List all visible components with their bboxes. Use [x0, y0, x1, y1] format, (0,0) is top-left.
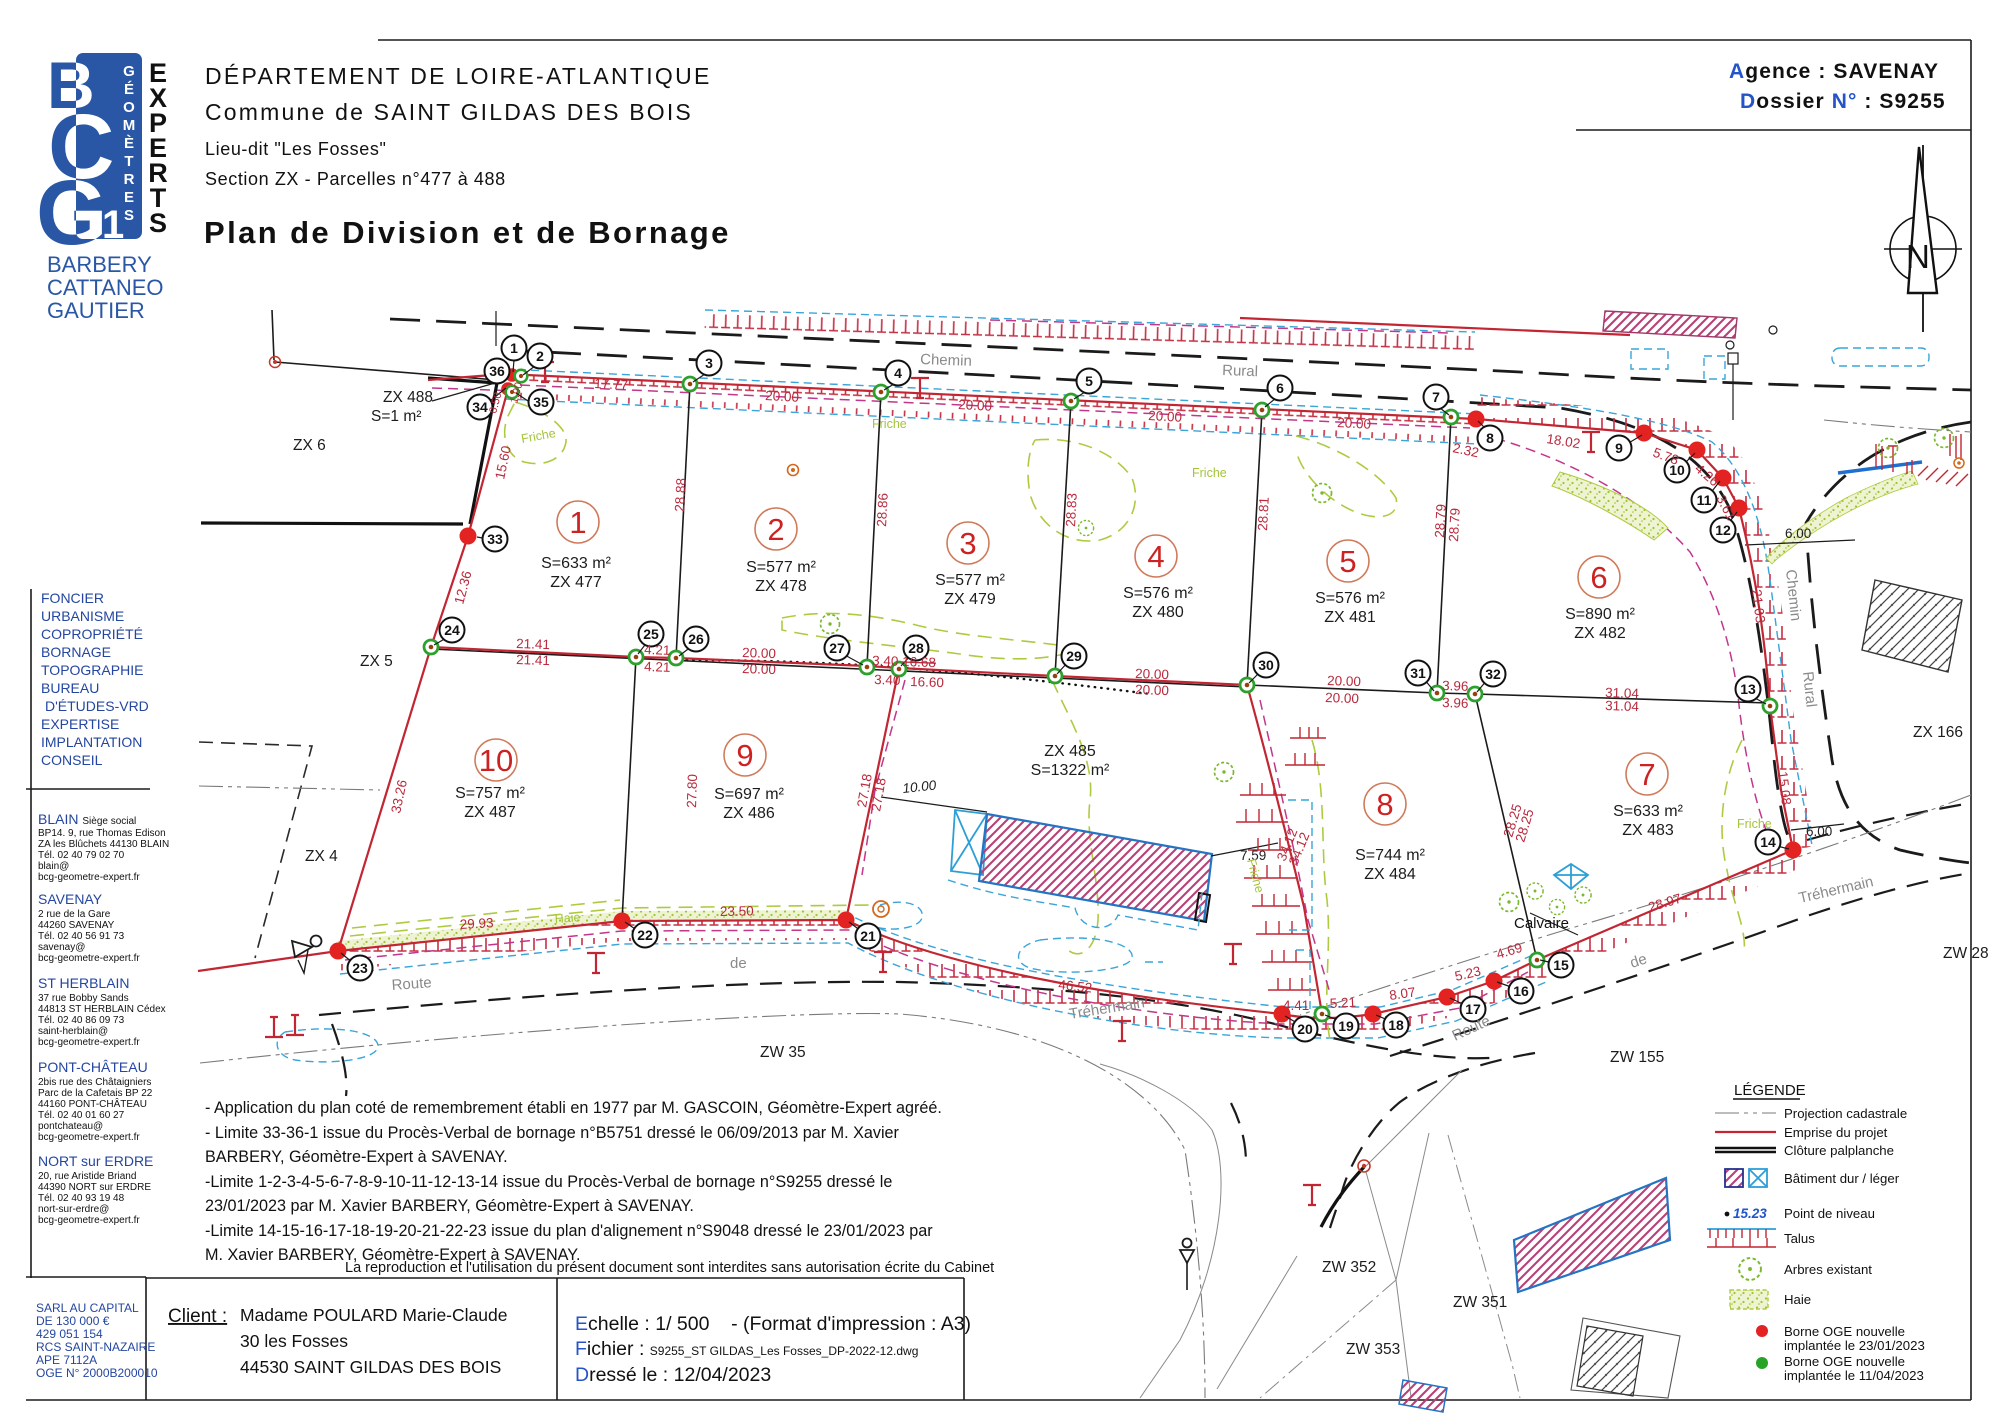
svg-text:savenay@: savenay@ — [38, 942, 85, 953]
svg-text:Madame POULARD Marie-Claude: Madame POULARD Marie-Claude — [240, 1305, 507, 1325]
svg-text:1: 1 — [102, 203, 124, 247]
svg-text:20: 20 — [1297, 1021, 1313, 1037]
svg-text:10: 10 — [479, 743, 513, 778]
svg-text:2.32: 2.32 — [1451, 440, 1480, 460]
svg-text:3.96: 3.96 — [1442, 695, 1469, 711]
svg-text:E: E — [124, 189, 134, 206]
svg-text:S=757 m²: S=757 m² — [455, 785, 525, 802]
svg-text:S=576 m²: S=576 m² — [1123, 585, 1193, 602]
svg-text:20.00: 20.00 — [742, 661, 776, 677]
svg-text:Rural: Rural — [1799, 671, 1820, 708]
svg-text:8.07: 8.07 — [1388, 984, 1416, 1003]
svg-text:4.41: 4.41 — [1283, 998, 1309, 1013]
svg-text:27: 27 — [829, 640, 845, 656]
svg-text:6: 6 — [1590, 560, 1607, 595]
svg-text:18: 18 — [1388, 1017, 1404, 1033]
svg-text:S: S — [124, 207, 134, 224]
svg-text:ZX 481: ZX 481 — [1324, 609, 1376, 626]
svg-text:Chemin: Chemin — [1782, 569, 1804, 622]
svg-text:22: 22 — [637, 927, 653, 943]
svg-text:23/01/2023 par M. Xavier BARBE: 23/01/2023 par M. Xavier BARBERY, Géomèt… — [205, 1197, 694, 1215]
svg-text:implantée le 23/01/2023: implantée le 23/01/2023 — [1784, 1338, 1925, 1353]
svg-text:4: 4 — [1147, 539, 1164, 574]
svg-text:20, rue Aristide Briand: 20, rue Aristide Briand — [38, 1171, 136, 1182]
svg-text:ZX 5: ZX 5 — [360, 653, 393, 670]
svg-text:Friche: Friche — [1192, 466, 1227, 480]
svg-text:bcg-geometre-expert.fr: bcg-geometre-expert.fr — [38, 953, 140, 964]
svg-text:CONSEIL: CONSEIL — [41, 752, 103, 768]
svg-text:Friche: Friche — [1737, 817, 1772, 831]
svg-text:Lieu-dit "Les Fosses": Lieu-dit "Les Fosses" — [205, 139, 386, 159]
svg-text:-Limite 14-15-16-17-18-19-20-2: -Limite 14-15-16-17-18-19-20-21-22-23 is… — [205, 1222, 933, 1240]
svg-text:S=1322 m²: S=1322 m² — [1031, 762, 1110, 779]
svg-text:Emprise du projet: Emprise du projet — [1784, 1125, 1888, 1140]
svg-text:ZX 6: ZX 6 — [293, 437, 326, 454]
svg-text:Dressé le : 12/04/2023: Dressé le : 12/04/2023 — [575, 1364, 771, 1386]
svg-text:Borne OGE nouvelle: Borne OGE nouvelle — [1784, 1354, 1905, 1369]
svg-text:La reproduction et l'utilisati: La reproduction et l'utilisation du prés… — [345, 1260, 994, 1276]
svg-text:12: 12 — [1715, 522, 1731, 538]
svg-text:bcg-geometre-expert.fr: bcg-geometre-expert.fr — [38, 1037, 140, 1048]
svg-text:DÉPARTEMENT DE LOIRE-ATLANTIQU: DÉPARTEMENT DE LOIRE-ATLANTIQUE — [205, 63, 712, 89]
svg-text:16.60: 16.60 — [910, 674, 944, 690]
svg-text:ZX 482: ZX 482 — [1574, 625, 1626, 642]
svg-text:30: 30 — [1258, 657, 1274, 673]
svg-text:Tél. 02 40 56 91 73: Tél. 02 40 56 91 73 — [38, 931, 125, 942]
svg-text:28.83: 28.83 — [1063, 493, 1080, 528]
svg-text:S=744 m²: S=744 m² — [1355, 847, 1425, 864]
svg-text:9: 9 — [736, 738, 753, 773]
svg-text:27.80: 27.80 — [684, 774, 700, 808]
svg-text:Clôture palplanche: Clôture palplanche — [1784, 1143, 1894, 1158]
svg-text:21.41: 21.41 — [516, 636, 550, 652]
svg-text:44530 SAINT GILDAS DES BOIS: 44530 SAINT GILDAS DES BOIS — [240, 1357, 501, 1377]
svg-text:1: 1 — [510, 340, 518, 356]
svg-text:Point de niveau: Point de niveau — [1784, 1206, 1875, 1221]
svg-text:14: 14 — [1760, 834, 1776, 850]
svg-text:Haie: Haie — [1784, 1292, 1811, 1307]
svg-text:4: 4 — [894, 365, 902, 381]
svg-text:9: 9 — [1615, 440, 1623, 456]
svg-text:ZX 487: ZX 487 — [464, 804, 516, 821]
svg-text:13: 13 — [1740, 681, 1756, 697]
svg-text:OGE N° 2000B200010: OGE N° 2000B200010 — [36, 1366, 158, 1380]
svg-text:6.00: 6.00 — [1785, 526, 1811, 541]
svg-text:4.21: 4.21 — [644, 642, 671, 658]
svg-text:pontchateau@: pontchateau@ — [38, 1121, 103, 1132]
svg-text:DE 130 000 €: DE 130 000 € — [36, 1314, 110, 1328]
svg-text:20.00: 20.00 — [1325, 690, 1359, 706]
svg-text:saint-herblain@: saint-herblain@ — [38, 1026, 108, 1037]
svg-text:35: 35 — [533, 394, 549, 410]
svg-text:31.04: 31.04 — [1605, 698, 1640, 714]
svg-text:blain@: blain@ — [38, 861, 69, 872]
svg-text:33: 33 — [487, 531, 503, 547]
svg-text:S=1 m²: S=1 m² — [371, 408, 421, 425]
svg-text:20.00: 20.00 — [765, 388, 800, 405]
svg-text:18.02: 18.02 — [1546, 431, 1582, 451]
svg-text:20.00: 20.00 — [1135, 666, 1169, 682]
svg-text:Arbres existant: Arbres existant — [1784, 1262, 1872, 1277]
svg-text:7: 7 — [1638, 757, 1655, 792]
svg-text:BARBERY: BARBERY — [47, 252, 152, 277]
svg-text:3.40: 3.40 — [874, 672, 901, 688]
svg-text:Section ZX - Parcelles n°477 à: Section ZX - Parcelles n°477 à 488 — [205, 169, 506, 189]
svg-text:Commune de SAINT GILDAS DES BO: Commune de SAINT GILDAS DES BOIS — [205, 99, 693, 125]
svg-text:Agence : SAVENAY: Agence : SAVENAY — [1729, 60, 1939, 83]
svg-text:LÉGENDE: LÉGENDE — [1734, 1082, 1806, 1099]
svg-text:GAUTIER: GAUTIER — [47, 298, 145, 323]
svg-text:21.03: 21.03 — [1749, 589, 1768, 624]
svg-text:Haie: Haie — [554, 910, 581, 926]
svg-text:20.00: 20.00 — [1337, 415, 1372, 432]
svg-text:de: de — [730, 955, 747, 972]
svg-text:ZX 483: ZX 483 — [1622, 822, 1674, 839]
svg-text:34: 34 — [472, 399, 488, 415]
svg-text:EXPERTISE: EXPERTISE — [41, 716, 119, 732]
svg-text:ZX 479: ZX 479 — [944, 591, 996, 608]
svg-text:Tél. 02 40 86 09 73: Tél. 02 40 86 09 73 — [38, 1015, 125, 1026]
svg-text:S=633 m²: S=633 m² — [541, 555, 611, 572]
svg-text:S=633 m²: S=633 m² — [1613, 803, 1683, 820]
svg-text:T: T — [124, 153, 133, 170]
svg-text:Talus: Talus — [1784, 1231, 1815, 1246]
svg-text:23.50: 23.50 — [720, 903, 754, 919]
svg-text:32: 32 — [1485, 666, 1501, 682]
svg-text:21.41: 21.41 — [516, 652, 550, 668]
svg-text:ZA les Blûchets 44130 BLAIN: ZA les Blûchets 44130 BLAIN — [38, 839, 169, 850]
svg-text:ZX 4: ZX 4 — [305, 848, 338, 865]
svg-text:ZX 477: ZX 477 — [550, 574, 602, 591]
svg-text:44160 PONT-CHÂTEAU: 44160 PONT-CHÂTEAU — [38, 1097, 147, 1110]
svg-text:O: O — [123, 99, 135, 116]
svg-text:- Application du plan coté de: - Application du plan coté de remembreme… — [205, 1099, 942, 1117]
svg-text:S=577 m²: S=577 m² — [746, 559, 816, 576]
svg-text:- Limite 33-36-1 issue du Proc: - Limite 33-36-1 issue du Procès-Verbal … — [205, 1124, 900, 1142]
svg-text:S=577 m²: S=577 m² — [935, 572, 1005, 589]
svg-text:bcg-geometre-expert.fr: bcg-geometre-expert.fr — [38, 872, 140, 883]
svg-text:PONT-CHÂTEAU: PONT-CHÂTEAU — [38, 1059, 148, 1075]
svg-text:3.96: 3.96 — [1442, 678, 1469, 694]
svg-text:ZX 486: ZX 486 — [723, 805, 775, 822]
svg-text:de: de — [1628, 950, 1649, 971]
svg-text:NORT sur ERDRE: NORT sur ERDRE — [38, 1153, 153, 1169]
svg-text:-Limite 1-2-3-4-5-6-7-8-9-10-1: -Limite 1-2-3-4-5-6-7-8-9-10-11-12-13-14… — [205, 1173, 892, 1191]
svg-text:ZW 155: ZW 155 — [1610, 1049, 1664, 1066]
svg-text:N: N — [1906, 238, 1930, 275]
svg-text:bcg-geometre-expert.fr: bcg-geometre-expert.fr — [38, 1132, 140, 1143]
svg-text:20.00: 20.00 — [958, 397, 993, 414]
svg-text:429 051 154: 429 051 154 — [36, 1327, 103, 1341]
svg-text:2bis rue des Châtaigniers: 2bis rue des Châtaigniers — [38, 1077, 151, 1088]
svg-text:Tél. 02 40 93 19 48: Tél. 02 40 93 19 48 — [38, 1193, 125, 1204]
svg-text:2: 2 — [536, 348, 544, 364]
svg-text:20.00: 20.00 — [1135, 682, 1169, 698]
svg-text:S=576 m²: S=576 m² — [1315, 590, 1385, 607]
svg-text:8: 8 — [1486, 430, 1494, 446]
svg-text:Chemin: Chemin — [920, 351, 972, 370]
svg-text:31: 31 — [1410, 665, 1426, 681]
svg-text:Parc de la Cafetais BP 22: Parc de la Cafetais BP 22 — [38, 1088, 153, 1099]
svg-text:Friche: Friche — [520, 426, 557, 446]
svg-text:RCS SAINT-NAZAIRE: RCS SAINT-NAZAIRE — [36, 1340, 155, 1354]
svg-text:44390 NORT sur ERDRE: 44390 NORT sur ERDRE — [38, 1182, 151, 1193]
svg-text:TOPOGRAPHIE: TOPOGRAPHIE — [41, 662, 143, 678]
svg-text:28.81: 28.81 — [1255, 497, 1272, 532]
svg-text:bcg-geometre-expert.fr: bcg-geometre-expert.fr — [38, 1215, 140, 1226]
svg-text:G: G — [123, 63, 135, 80]
svg-text:Tél. 02 40 79 02 70: Tél. 02 40 79 02 70 — [38, 850, 125, 861]
svg-text:23: 23 — [352, 960, 368, 976]
svg-text:1: 1 — [569, 505, 586, 540]
svg-text:Borne OGE nouvelle: Borne OGE nouvelle — [1784, 1324, 1905, 1339]
svg-text:25: 25 — [643, 626, 659, 642]
svg-text:15.60: 15.60 — [492, 444, 514, 480]
svg-text:S=697 m²: S=697 m² — [714, 786, 784, 803]
svg-text:ZX 480: ZX 480 — [1132, 604, 1184, 621]
svg-text:10.00: 10.00 — [902, 777, 938, 796]
svg-text:28.86: 28.86 — [874, 493, 891, 528]
svg-text:È: È — [124, 135, 134, 152]
svg-text:2 rue de la Gare: 2 rue de la Gare — [38, 909, 111, 920]
svg-text:É: É — [124, 81, 134, 98]
svg-text:S=890 m²: S=890 m² — [1565, 606, 1635, 623]
svg-text:44813 ST HERBLAIN Cédex: 44813 ST HERBLAIN Cédex — [38, 1004, 166, 1015]
svg-text:Projection cadastrale: Projection cadastrale — [1784, 1106, 1907, 1121]
svg-text:7: 7 — [1432, 389, 1440, 405]
svg-text:3: 3 — [959, 526, 976, 561]
svg-text:17.77: 17.77 — [594, 376, 629, 393]
svg-text:ZW 35: ZW 35 — [760, 1044, 806, 1061]
svg-text:20.00: 20.00 — [1327, 673, 1361, 689]
svg-text:D'ÉTUDES-VRD: D'ÉTUDES-VRD — [45, 698, 149, 714]
svg-text:Calvaire: Calvaire — [1514, 915, 1569, 932]
svg-text:33.26: 33.26 — [388, 778, 410, 814]
svg-text:ST HERBLAIN: ST HERBLAIN — [38, 975, 130, 991]
svg-text:6.00: 6.00 — [1806, 824, 1832, 839]
svg-text:Tél. 02 40 01 60 27: Tél. 02 40 01 60 27 — [38, 1110, 125, 1121]
svg-text:Bâtiment dur / léger: Bâtiment dur / léger — [1784, 1171, 1900, 1186]
svg-text:36: 36 — [489, 363, 505, 379]
svg-text:21: 21 — [860, 928, 876, 944]
svg-text:SAVENAY: SAVENAY — [38, 891, 103, 907]
svg-text:37 rue Bobby Sands: 37 rue Bobby Sands — [38, 993, 129, 1004]
svg-text:16.68: 16.68 — [902, 654, 936, 670]
svg-text:ZX 485: ZX 485 — [1044, 743, 1096, 760]
svg-text:11: 11 — [1697, 492, 1712, 508]
svg-text:15: 15 — [1553, 957, 1569, 973]
svg-text:ZW 353: ZW 353 — [1346, 1341, 1400, 1358]
svg-text:ZW 352: ZW 352 — [1322, 1259, 1376, 1276]
svg-text:16: 16 — [1513, 983, 1529, 999]
svg-text:BORNAGE: BORNAGE — [41, 644, 111, 660]
svg-text:44260 SAVENAY: 44260 SAVENAY — [38, 920, 115, 931]
svg-text:28.88: 28.88 — [672, 478, 689, 513]
svg-text:4.21: 4.21 — [644, 659, 671, 675]
svg-text:5: 5 — [1085, 373, 1093, 389]
svg-text:15.08: 15.08 — [1775, 771, 1794, 806]
svg-text:2: 2 — [767, 512, 784, 547]
svg-text:4.69: 4.69 — [1494, 940, 1524, 962]
svg-text:FONCIER: FONCIER — [41, 590, 104, 606]
svg-text:ZW 351: ZW 351 — [1453, 1294, 1507, 1311]
svg-text:Client :: Client : — [168, 1306, 227, 1327]
svg-text:BLAIN Siège social: BLAIN Siège social — [38, 811, 136, 827]
svg-text:29: 29 — [1066, 648, 1082, 664]
svg-text:Fichier : S9255_ST GILDAS_Les: Fichier : S9255_ST GILDAS_Les Fosses_DP-… — [575, 1338, 918, 1360]
svg-text:M: M — [123, 117, 136, 134]
svg-text:ZX 484: ZX 484 — [1364, 866, 1416, 883]
svg-text:Echelle : 1/ 500 - (Format: Echelle : 1/ 500 - (Format d'impression … — [575, 1313, 971, 1335]
svg-text:28.79: 28.79 — [1446, 508, 1463, 543]
svg-text:nort-sur-erdre@: nort-sur-erdre@ — [38, 1204, 109, 1215]
svg-text:BUREAU: BUREAU — [41, 680, 99, 696]
svg-text:ZX 166: ZX 166 — [1913, 724, 1963, 741]
svg-text:Rural: Rural — [1222, 362, 1258, 380]
svg-text:20.00: 20.00 — [1148, 408, 1183, 425]
svg-text:30 les Fosses: 30 les Fosses — [240, 1331, 348, 1351]
svg-text:8: 8 — [1376, 787, 1393, 822]
svg-text:6: 6 — [1276, 380, 1284, 396]
svg-text:Plan de Division et de Bornage: Plan de Division et de Bornage — [204, 215, 731, 250]
svg-text:URBANISME: URBANISME — [41, 608, 124, 624]
svg-text:ZW 28: ZW 28 — [1943, 945, 1989, 962]
svg-text:COPROPRIÉTÉ: COPROPRIÉTÉ — [41, 626, 143, 642]
svg-text:26: 26 — [688, 631, 704, 647]
svg-text:ZX 478: ZX 478 — [755, 578, 807, 595]
svg-text:IMPLANTATION: IMPLANTATION — [41, 734, 142, 750]
svg-text:20.00: 20.00 — [742, 645, 776, 661]
svg-text:SARL AU CAPITAL: SARL AU CAPITAL — [36, 1301, 139, 1315]
svg-text:5.21: 5.21 — [1329, 995, 1356, 1011]
svg-text:CATTANEO: CATTANEO — [47, 275, 164, 300]
svg-text:19: 19 — [1338, 1018, 1354, 1034]
svg-text:S: S — [149, 208, 167, 238]
svg-text:BARBERY, Géomètre-Expert à SAV: BARBERY, Géomètre-Expert à SAVENAY. — [205, 1148, 508, 1166]
svg-text:BP14. 9, rue Thomas Edison: BP14. 9, rue Thomas Edison — [38, 828, 166, 839]
svg-text:29.93: 29.93 — [459, 915, 494, 932]
svg-text:Tréhermain: Tréhermain — [1797, 873, 1875, 907]
svg-text:Friche: Friche — [872, 417, 907, 431]
svg-text:ZX 488: ZX 488 — [383, 389, 433, 406]
svg-text:15.23: 15.23 — [1733, 1206, 1767, 1221]
svg-text:Route: Route — [391, 974, 432, 994]
svg-text:Dossier N° : S9255: Dossier N° : S9255 — [1740, 90, 1946, 113]
svg-text:3: 3 — [705, 355, 713, 371]
svg-text:5: 5 — [1339, 544, 1356, 579]
svg-text:24: 24 — [444, 622, 460, 638]
svg-text:3.40: 3.40 — [872, 653, 899, 669]
svg-text:R: R — [124, 171, 135, 188]
svg-text:5.23: 5.23 — [1453, 963, 1482, 984]
svg-text:implantée le 11/04/2023: implantée le 11/04/2023 — [1784, 1368, 1924, 1383]
svg-text:APE 7112A: APE 7112A — [36, 1353, 97, 1367]
